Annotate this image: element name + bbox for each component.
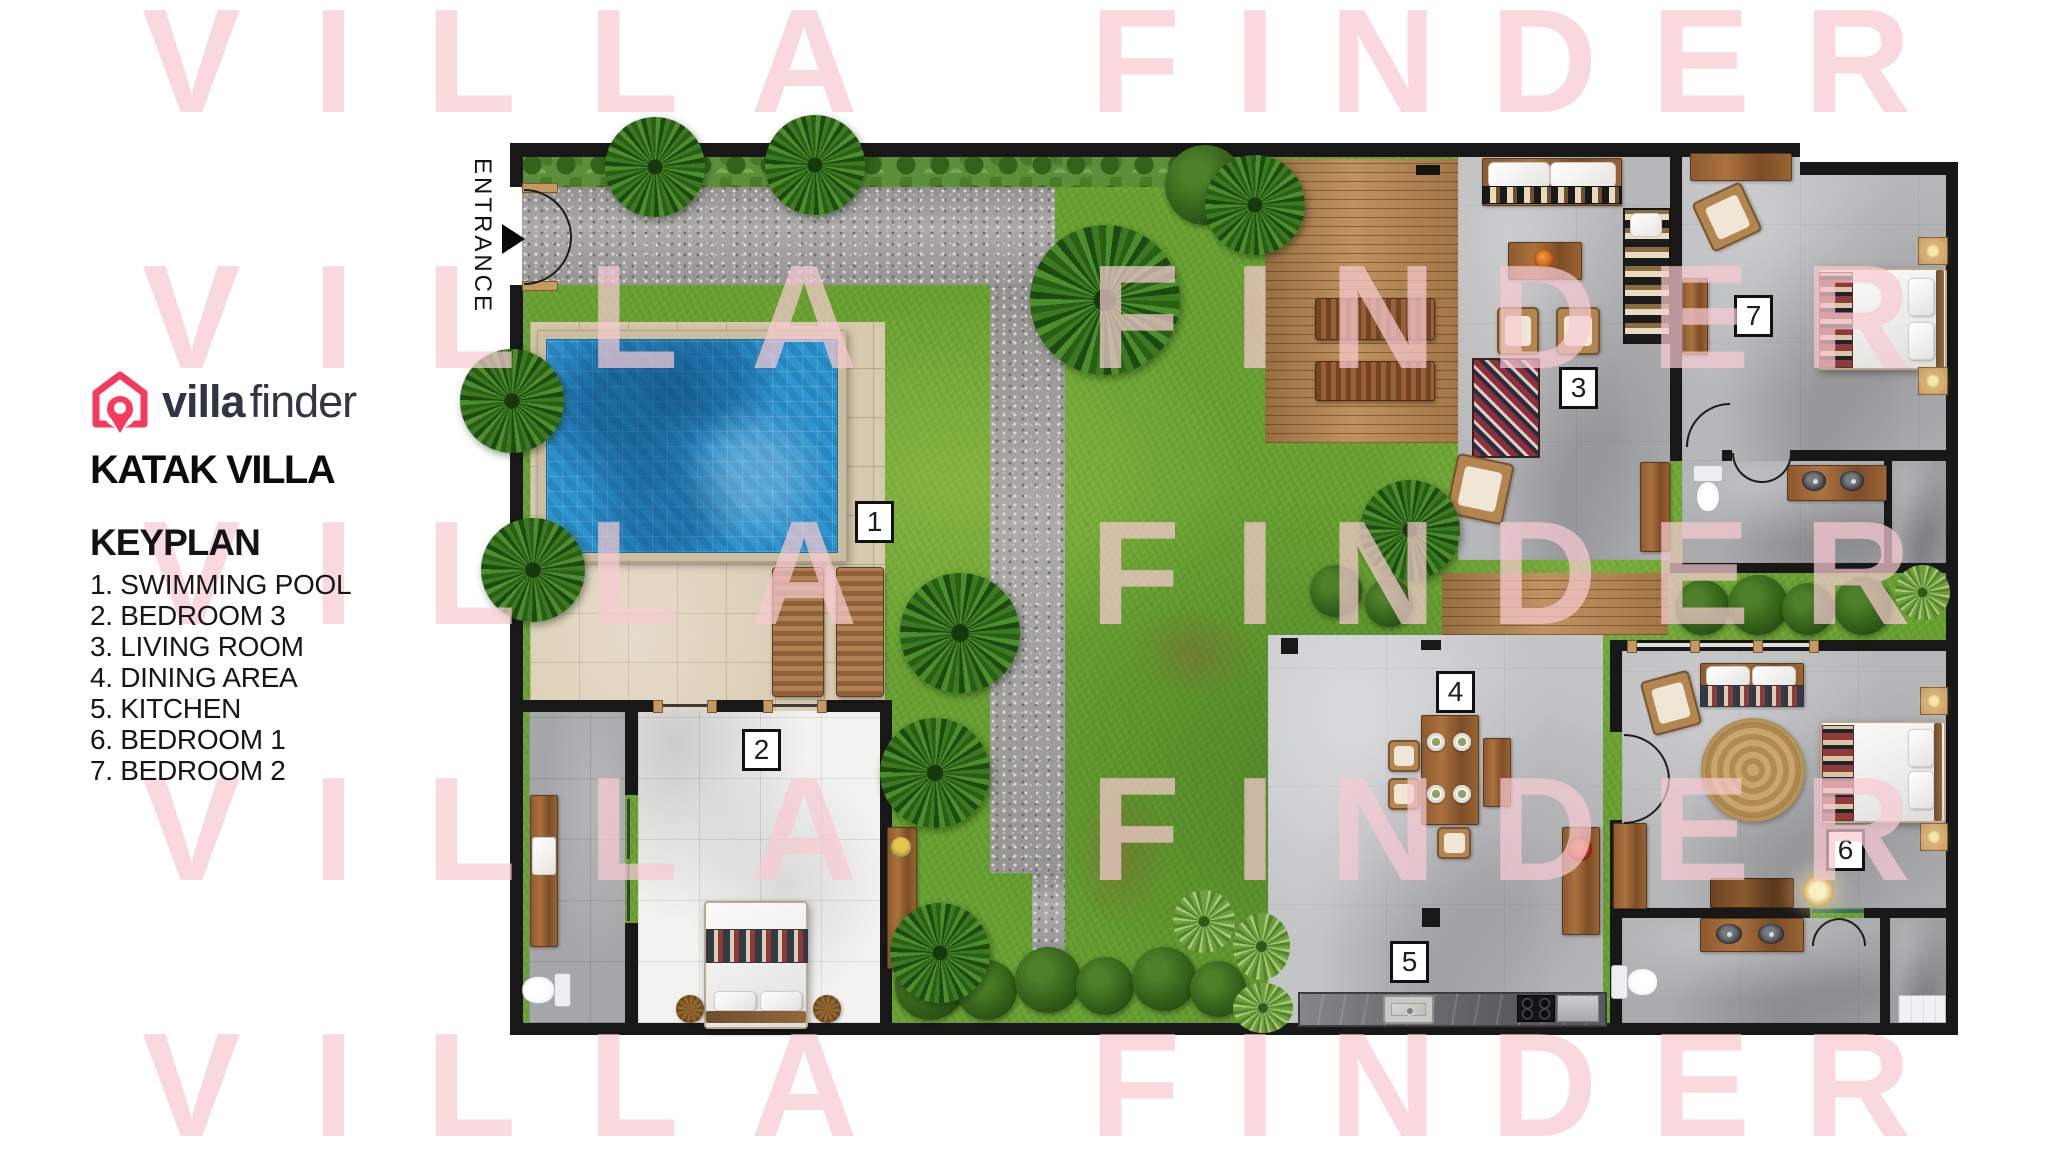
palm-tree — [481, 518, 585, 622]
villafinder-logo-icon — [88, 370, 152, 434]
villafinder-logo: villa finder — [88, 370, 356, 434]
villa-floorplan-page: 1 2 3 4 5 6 7 ENTRANCE villa finder KATA… — [0, 0, 2048, 1152]
garden-path — [990, 285, 1065, 873]
palm-tree — [1030, 225, 1180, 375]
sun-lounger — [836, 567, 884, 697]
door-frame — [1690, 640, 1700, 653]
toilet — [1611, 966, 1657, 1000]
bush — [1132, 947, 1196, 1011]
sofa-kilim-rug — [1482, 186, 1622, 204]
room-marker-kitchen: 5 — [1390, 941, 1429, 983]
wall-bedroom2-bottom — [1722, 450, 1732, 461]
wall-living-bedroom2 — [1670, 143, 1682, 461]
yucca-plant — [1895, 565, 1950, 620]
pouf — [676, 995, 704, 1023]
double-bed — [1817, 268, 1947, 370]
door-frame — [653, 700, 663, 713]
wooden-walkway — [1442, 573, 1668, 635]
watermark-finder: FINDER — [1090, 0, 1965, 136]
wall-bath1 — [1610, 908, 1810, 918]
yucca-plant — [1173, 890, 1235, 953]
shower2-floor — [1892, 461, 1946, 563]
flower-vase — [891, 837, 911, 857]
nightstand-lamp — [1918, 237, 1948, 265]
wall-left-upper — [510, 143, 523, 187]
sink-basin — [1716, 924, 1742, 944]
place-setting — [1427, 785, 1445, 803]
sofa-kilim — [1700, 685, 1804, 707]
door-frame — [1809, 640, 1819, 653]
wall-bath3-divider — [625, 923, 638, 1023]
garden-path-end — [1032, 873, 1065, 955]
yucca-plant — [1233, 983, 1293, 1033]
keyplan-item: 5. KITCHEN — [90, 693, 351, 724]
palm-tree — [890, 903, 990, 1003]
sink-basin — [1758, 924, 1784, 944]
sofa-cushion — [1550, 162, 1616, 188]
lawn-patch — [1070, 777, 1170, 927]
sink-basin — [532, 837, 556, 875]
bedroom1-sliding-door — [1627, 643, 1817, 647]
keyplan-item: 2. BEDROOM 3 — [90, 600, 351, 631]
door-frame — [707, 700, 717, 713]
lawn-patch — [1130, 607, 1260, 697]
nightstand-lamp — [1920, 687, 1948, 715]
watermark-row: VILLA FINDER — [0, 0, 2048, 136]
wall-top-right — [1800, 162, 1958, 175]
room-marker-number: 6 — [1838, 834, 1854, 866]
double-bed — [1820, 721, 1946, 823]
pillow — [1908, 322, 1934, 360]
bush — [1728, 575, 1788, 635]
bush — [1782, 583, 1834, 635]
desk — [1682, 278, 1708, 355]
bench-shelf — [1690, 153, 1792, 181]
place-setting — [1427, 733, 1445, 751]
bush — [1076, 957, 1134, 1015]
kitchen-sink — [1383, 995, 1434, 1024]
dining-table — [1421, 715, 1479, 825]
bush — [1834, 577, 1892, 635]
floor-lamp — [1802, 875, 1834, 907]
swimming-pool — [537, 330, 847, 562]
bush — [1675, 580, 1730, 635]
console-table — [1640, 462, 1670, 552]
wall-bedroom1-left — [1610, 640, 1622, 732]
sink-basin — [1802, 471, 1826, 491]
room-marker-bedroom-3: 2 — [742, 729, 781, 771]
sofa-cushion — [1706, 666, 1750, 687]
room-marker-swimming-pool: 1 — [855, 501, 894, 543]
room-marker-bedroom-2: 7 — [1734, 295, 1773, 337]
wall-notch — [1800, 137, 1958, 162]
logo-text-villa: villa — [162, 376, 245, 428]
double-bed — [704, 901, 808, 1029]
cooktop — [1517, 995, 1555, 1022]
room-marker-bedroom-1: 6 — [1826, 829, 1865, 871]
villa-title: KATAK VILLA — [90, 448, 334, 493]
tomato-bowl — [1568, 837, 1592, 861]
room-marker-number: 1 — [867, 506, 883, 538]
deck-lounger — [1315, 298, 1435, 340]
red-kilim-rug — [1472, 358, 1540, 458]
room-marker-number: 4 — [1448, 676, 1464, 708]
pillow — [1908, 729, 1934, 767]
pillow — [1908, 771, 1934, 809]
sofa-cushion — [1752, 666, 1796, 687]
floor-plan: 1 2 3 4 5 6 7 — [510, 137, 1958, 1035]
pillow — [1908, 278, 1934, 316]
palm-tree — [900, 573, 1020, 693]
wall-shower1-divider — [1880, 918, 1890, 1023]
fruit-bowl — [1534, 249, 1554, 269]
sliding-door — [765, 704, 822, 707]
room-marker-dining-area: 4 — [1436, 671, 1475, 713]
keyplan-item: 4. DINING AREA — [90, 662, 351, 693]
palm-tree — [460, 349, 564, 453]
armchair — [1497, 307, 1539, 355]
palm-tree — [880, 718, 990, 828]
yucca-plant — [1233, 913, 1290, 980]
door-frame — [763, 700, 773, 713]
headboard — [706, 1011, 806, 1023]
dining-chair — [1437, 827, 1471, 859]
dining-bench — [1483, 738, 1511, 807]
keyplan-list: 1. SWIMMING POOL 2. BEDROOM 3 3. LIVING … — [90, 569, 351, 786]
bush — [1015, 947, 1081, 1013]
room-marker-number: 5 — [1402, 946, 1418, 978]
palm-tree — [1360, 480, 1460, 580]
nightstand-lamp — [1920, 823, 1948, 851]
keyplan-item: 1. SWIMMING POOL — [90, 569, 351, 600]
keyplan-item: 7. BEDROOM 2 — [90, 755, 351, 786]
entrance-arrow-icon — [502, 224, 525, 254]
headboard — [1934, 723, 1942, 821]
door-frame — [1753, 640, 1763, 653]
pillow — [760, 991, 802, 1011]
column — [1281, 638, 1298, 654]
pillow — [714, 991, 756, 1011]
toilet — [523, 972, 571, 1006]
bed-throw — [706, 929, 808, 963]
wall-bath3-divider — [625, 711, 638, 795]
dining-chair — [1388, 778, 1420, 810]
round-jute-rug — [1701, 718, 1805, 822]
bed-throw — [1819, 272, 1853, 368]
logo-text-finder: finder — [250, 376, 357, 428]
column — [1421, 640, 1441, 650]
counter-appliance — [1557, 995, 1599, 1022]
shelf — [1613, 823, 1647, 909]
wall-top — [510, 143, 1808, 157]
keyplan-item: 6. BEDROOM 1 — [90, 724, 351, 755]
sliding-door — [655, 704, 712, 707]
bath3-door — [627, 799, 630, 859]
room-marker-number: 2 — [754, 734, 770, 766]
door-frame — [817, 700, 827, 713]
wall-bath1 — [1864, 908, 1958, 918]
bush — [1365, 579, 1413, 627]
sofa-cushion — [1488, 162, 1550, 188]
pouf — [813, 995, 841, 1023]
sun-lounger — [772, 567, 824, 697]
shower-tray — [1898, 995, 1946, 1023]
palm-tree — [1205, 155, 1305, 255]
toilet — [1692, 465, 1722, 511]
throw-blanket — [1630, 213, 1662, 237]
keyplan-heading: KEYPLAN — [90, 522, 260, 564]
nightstand-lamp — [1918, 367, 1948, 395]
sink-basin — [1840, 471, 1864, 491]
door-mat — [1416, 165, 1440, 175]
bush — [1310, 565, 1362, 617]
bath1-door — [1812, 909, 1864, 913]
room-marker-number: 7 — [1746, 300, 1762, 332]
lawn-patch — [1237, 260, 1265, 375]
place-setting — [1453, 733, 1471, 751]
palm-tree — [765, 115, 865, 215]
door-frame — [1627, 640, 1637, 653]
room-marker-number: 3 — [1571, 372, 1587, 404]
bed-throw — [1822, 725, 1854, 821]
entrance-label: ENTRANCE — [468, 158, 502, 353]
place-setting — [1453, 785, 1471, 803]
bath3-door — [627, 863, 630, 921]
headboard — [1936, 270, 1944, 368]
pool-water — [546, 339, 838, 553]
desk — [1710, 878, 1794, 908]
room-marker-living-room: 3 — [1559, 367, 1598, 409]
armchair — [1556, 307, 1600, 355]
palm-tree — [605, 117, 705, 217]
dining-chair — [1388, 740, 1420, 772]
wall-bedroom2-bottom — [1790, 450, 1946, 461]
keyplan-item: 3. LIVING ROOM — [90, 631, 351, 662]
column — [1422, 908, 1440, 927]
wall-bedroom3 — [712, 700, 765, 712]
deck-lounger — [1315, 361, 1435, 401]
